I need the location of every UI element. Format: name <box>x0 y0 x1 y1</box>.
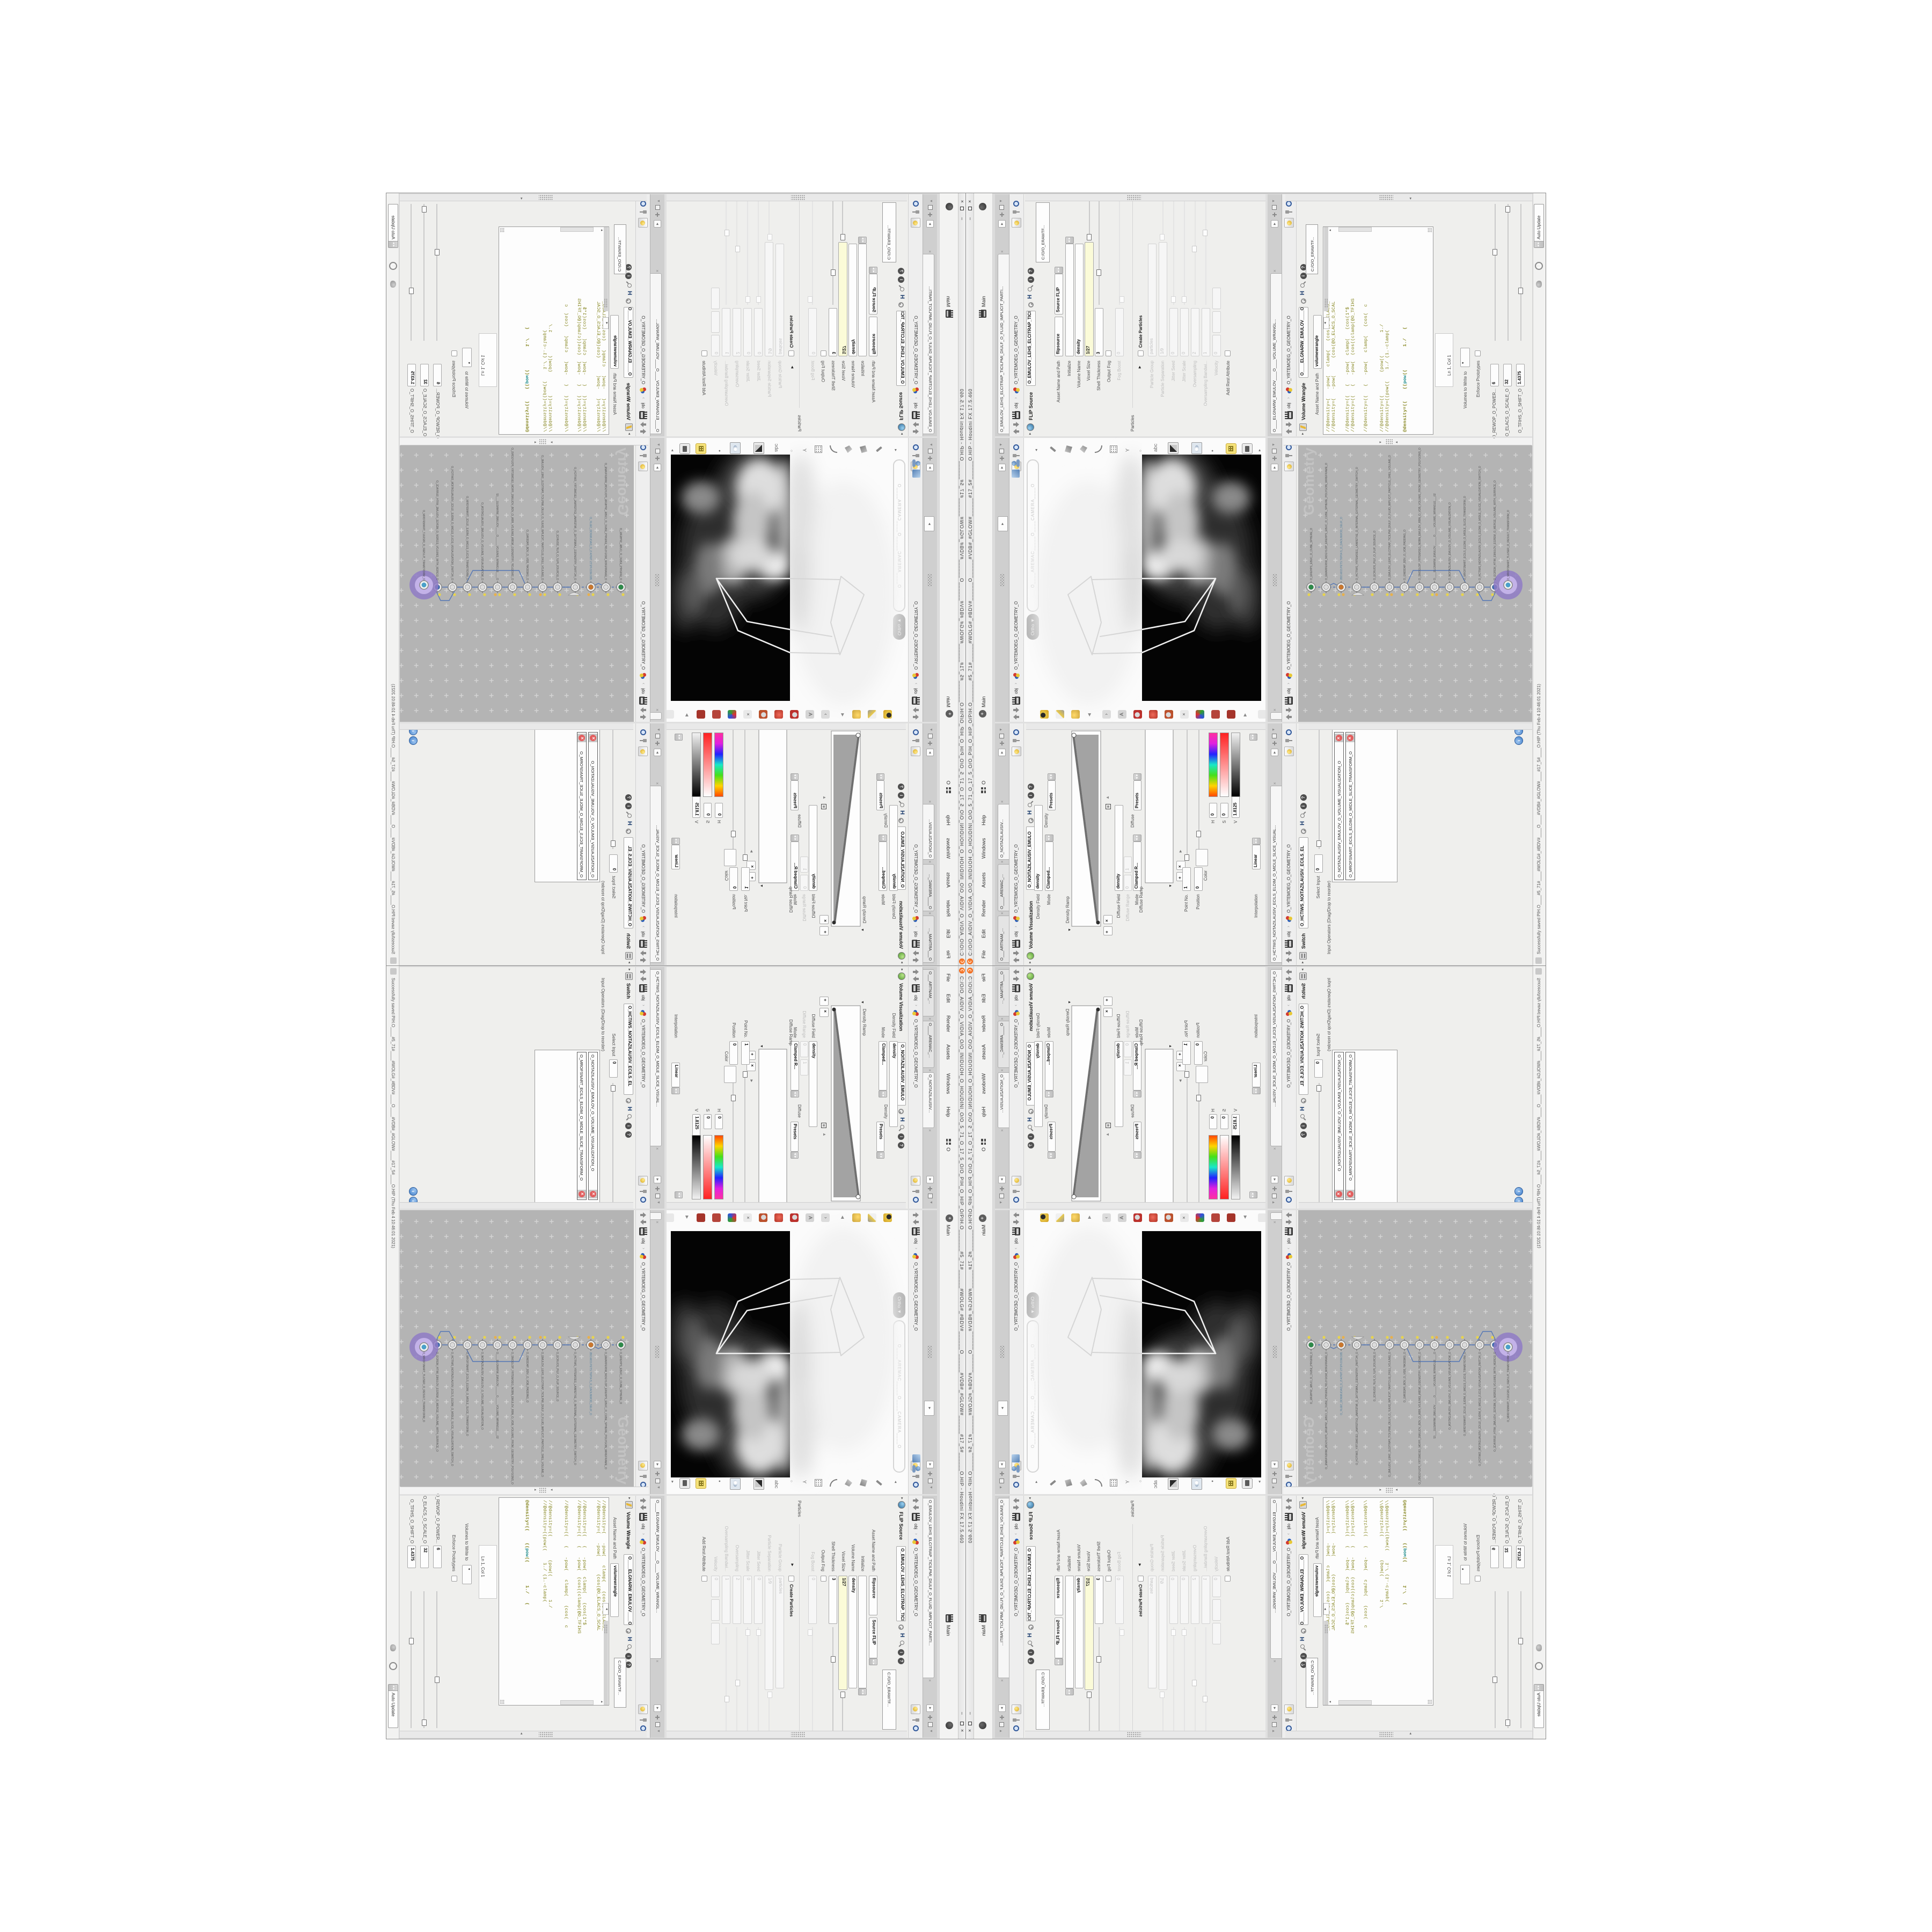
svg-text:O_GNIDDAP_BDV_O_VDB_PADDING_O: O_GNIDDAP_BDV_O_VDB_PADDING_O <box>1403 530 1407 580</box>
svg-text:JBO.M03.PETS.T6P04.5_O_DAOLNWO: JBO.M03.PETS.T6P04.5_O_DAOLNWOD_SELIF_O <box>1340 1352 1343 1415</box>
svg-text:O____ELGNARW_EMULOV______O____: O____ELGNARW_EMULOV______O_____VOLUME_WR… <box>495 1352 499 1439</box>
svg-text:O_MROFSNART_TLUSER_O_RESULT_TR: O_MROFSNART_TLUSER_O_RESULT_TRANSFORM_O <box>1507 1352 1510 1422</box>
svg-text:O____ELGNARW_EMULOV______O____: O____ELGNARW_EMULOV______O_____VOLUME_WR… <box>1433 1352 1437 1439</box>
svg-text:O_EMARFERIW_NOGYLOP_EREHPS_EBU: O_EMARFERIW_NOGYLOP_EREHPS_EBUC_O_CUBE_S… <box>1325 463 1328 580</box>
svg-text:O_EGREM_HTIW_EMULOV_EGREM_O_ME: O_EGREM_HTIW_EMULOV_EGREM_O_MERGE_VOLUME… <box>1494 1352 1497 1452</box>
svg-text:O_MROFSNART_TLUSER_O_RESULT_TR: O_MROFSNART_TLUSER_O_RESULT_TRANSFORM_O <box>422 1352 425 1422</box>
svg-text:JBO.M03.PETS.T6P04.5_O_DAOLNWO: JBO.M03.PETS.T6P04.5_O_DAOLNWOD_SELIF_O <box>589 517 592 580</box>
svg-text:O_EREHPS_EBUC_O_CUBE_SPHERE_O: O_EREHPS_EBUC_O_CUBE_SPHERE_O <box>619 1352 622 1404</box>
svg-text:O_MROFSNART_TLUSER_O_RESULT_TR: O_MROFSNART_TLUSER_O_RESULT_TRANSFORM_O <box>1507 510 1510 580</box>
svg-text:O_EREHPS_EBUC_O_CUBE_SPHERE_O: O_EREHPS_EBUC_O_CUBE_SPHERE_O <box>1310 528 1313 580</box>
svg-text:Geometry: Geometry <box>615 448 631 515</box>
svg-text:O_HCTIWS_NOITAZILAUSIV_ECILS_E: O_HCTIWS_NOITAZILAUSIV_ECILS_ELDIM_O_MID… <box>1479 466 1482 580</box>
svg-text:O____ELGNARW_EMULOV______O____: O____ELGNARW_EMULOV______O_____VOLUME_WR… <box>1433 493 1437 580</box>
svg-text:O_MROFSNART_TLUSER_O_RESULT_TR: O_MROFSNART_TLUSER_O_RESULT_TRANSFORM_O <box>422 510 425 580</box>
svg-text:O_MROFSNART_ECILS_ELDIM_O_MIDL: O_MROFSNART_ECILS_ELDIM_O_MIDLE_SLICE_TR… <box>465 1352 469 1436</box>
svg-text:O_MROFSNART_ECILS_ELDIM_O_MIDL: O_MROFSNART_ECILS_ELDIM_O_MIDLE_SLICE_TR… <box>1463 496 1467 580</box>
svg-text:O_EMULOV_LEHS_ELCITRAP_TICILPM: O_EMULOV_LEHS_ELCITRAP_TICILPMI_DIULF_O_… <box>1388 1352 1392 1477</box>
svg-text:O_ECRUOS_PILF_O_FLIP_SOURCE_O: O_ECRUOS_PILF_O_FLIP_SOURCE_O <box>555 1352 559 1401</box>
svg-text:O_GNIDDAP_BDV_O_VDB_PADDING_O: O_GNIDDAP_BDV_O_VDB_PADDING_O <box>525 1352 529 1402</box>
svg-text:O_SNOGLOP_YRTEMOEG_NOBN_EMULOV: O_SNOGLOP_YRTEMOEG_NOBN_EMULOV_RBN_O_VDB… <box>510 448 514 580</box>
svg-text:O_MROFSNART_ECILS_ELDIM_O_MIDL: O_MROFSNART_ECILS_ELDIM_O_MIDLE_SLICE_TR… <box>1463 1352 1467 1436</box>
svg-text:O____ELGNARW_EMULOV______O____: O____ELGNARW_EMULOV______O_____VOLUME_WR… <box>495 493 499 580</box>
svg-text:JBO.M03.PETS.T6P04.5_O_DAOLNWO: JBO.M03.PETS.T6P04.5_O_DAOLNWOD_SELIF_O <box>589 1352 592 1415</box>
svg-text:Geometry: Geometry <box>1301 448 1317 515</box>
svg-text:O_SNOGLOP_YRTEMOEG_NOBN_EMULOV: O_SNOGLOP_YRTEMOEG_NOBN_EMULOV_RBN_O_VDB… <box>1418 1352 1422 1484</box>
svg-text:O_ECRUOS_PILF_O_FLIP_SOURCE_O: O_ECRUOS_PILF_O_FLIP_SOURCE_O <box>1373 531 1377 580</box>
svg-text:O_EMULOV_LEHS_ELCITRAP_TICILPM: O_EMULOV_LEHS_ELCITRAP_TICILPMI_DIULF_O_… <box>540 1352 544 1477</box>
svg-text:O_HCTIWS_NOITAZILAUSIV_ECILS_E: O_HCTIWS_NOITAZILAUSIV_ECILS_ELDIM_O_MID… <box>450 1352 453 1466</box>
svg-text:O_EREHPS_EBUC_O_CUBE_SPHERE_O: O_EREHPS_EBUC_O_CUBE_SPHERE_O <box>619 528 622 580</box>
svg-text:O_EMULOV_LEHS_ELCITRAP_TICILPM: O_EMULOV_LEHS_ELCITRAP_TICILPMI_DIULF_O_… <box>1388 455 1392 580</box>
svg-text:O_EGREM_HTIW_EMULOV_EGREM_O_ME: O_EGREM_HTIW_EMULOV_EGREM_O_MERGE_VOLUME… <box>1494 480 1497 580</box>
svg-text:O_NOITAZILAUSIV_EMULOV_O_VOLUM: O_NOITAZILAUSIV_EMULOV_O_VOLUME_VISUALIZ… <box>480 1352 484 1430</box>
svg-text:O_HCTIWS_NOITAZILAUSIV_ECILS_E: O_HCTIWS_NOITAZILAUSIV_ECILS_ELDIM_O_MID… <box>450 466 453 580</box>
svg-text:O_MROFSNART_ECILS_ELDIM_O_MIDL: O_MROFSNART_ECILS_ELDIM_O_MIDLE_SLICE_TR… <box>465 496 469 580</box>
svg-text:O_NOITAZILAUSIV_EMULOV_O_VOLUM: O_NOITAZILAUSIV_EMULOV_O_VOLUME_VISUALIZ… <box>1448 1352 1452 1430</box>
svg-text:O_SNOGLOP_YRTEMOEG_NOBN_EMULOV: O_SNOGLOP_YRTEMOEG_NOBN_EMULOV_RBN_O_VDB… <box>510 1352 514 1484</box>
svg-text:O_HCTIWS_NOITAZILAUSIV_ECILS_E: O_HCTIWS_NOITAZILAUSIV_ECILS_ELDIM_O_MID… <box>1479 1352 1482 1466</box>
svg-text:O_EREHPS_EBUC_O_CUBE_SPHERE_O: O_EREHPS_EBUC_O_CUBE_SPHERE_O <box>1310 1352 1313 1404</box>
svg-text:O_NOITAZILAUSIV_EMULOV_O_VOLUM: O_NOITAZILAUSIV_EMULOV_O_VOLUME_VISUALIZ… <box>480 502 484 580</box>
svg-text:O_GNIDDAP_BDV_O_VDB_PADDING_O: O_GNIDDAP_BDV_O_VDB_PADDING_O <box>525 530 529 580</box>
svg-text:O_EGREM_HTIW_EMULOV_EGREM_O_ME: O_EGREM_HTIW_EMULOV_EGREM_O_MERGE_VOLUME… <box>435 480 438 580</box>
svg-text:O_GNIDDAP_BDV_O_VDB_PADDING_O: O_GNIDDAP_BDV_O_VDB_PADDING_O <box>1403 1352 1407 1402</box>
svg-text:O_SNOGLOP_YRTEMOEG_NOBN_EMULOV: O_SNOGLOP_YRTEMOEG_NOBN_EMULOV_RBN_O_VDB… <box>1418 448 1422 580</box>
svg-text:JBO.M03.PETS.T6P04.5_O_DAOLNWO: JBO.M03.PETS.T6P04.5_O_DAOLNWOD_SELIF_O <box>1340 517 1343 580</box>
svg-text:Geometry: Geometry <box>615 1417 631 1484</box>
svg-text:O_ECRUOS_PILF_O_FLIP_SOURCE_O: O_ECRUOS_PILF_O_FLIP_SOURCE_O <box>1373 1352 1377 1401</box>
svg-text:O_EMULOV_LEHS_ELCITRAP_TICILPM: O_EMULOV_LEHS_ELCITRAP_TICILPMI_DIULF_O_… <box>540 455 544 580</box>
svg-text:O_NOITAZILAUSIV_EMULOV_O_VOLUM: O_NOITAZILAUSIV_EMULOV_O_VOLUME_VISUALIZ… <box>1448 502 1452 580</box>
svg-text:Geometry: Geometry <box>1301 1417 1317 1484</box>
svg-text:O_EGREM_HTIW_EMULOV_EGREM_O_ME: O_EGREM_HTIW_EMULOV_EGREM_O_MERGE_VOLUME… <box>435 1352 438 1452</box>
svg-text:O_EMARFERIW_NOGYLOP_EREHPS_EBU: O_EMARFERIW_NOGYLOP_EREHPS_EBUC_O_CUBE_S… <box>604 1352 607 1469</box>
svg-text:O_HCTIWS_YRTEMOEG_LANRETXE_O_I: O_HCTIWS_YRTEMOEG_LANRETXE_O_INTERNAL_EX… <box>1356 467 1359 580</box>
svg-text:O_EMARFERIW_NOGYLOP_EREHPS_EBU: O_EMARFERIW_NOGYLOP_EREHPS_EBUC_O_CUBE_S… <box>1325 1352 1328 1469</box>
svg-text:O_ECRUOS_PILF_O_FLIP_SOURCE_O: O_ECRUOS_PILF_O_FLIP_SOURCE_O <box>555 531 559 580</box>
svg-text:O_HCTIWS_YRTEMOEG_LANRETXE_O_I: O_HCTIWS_YRTEMOEG_LANRETXE_O_INTERNAL_EX… <box>1356 1352 1359 1465</box>
svg-text:O_EMARFERIW_NOGYLOP_EREHPS_EBU: O_EMARFERIW_NOGYLOP_EREHPS_EBUC_O_CUBE_S… <box>604 463 607 580</box>
svg-text:O_HCTIWS_YRTEMOEG_LANRETXE_O_I: O_HCTIWS_YRTEMOEG_LANRETXE_O_INTERNAL_EX… <box>573 467 576 580</box>
svg-text:O_HCTIWS_YRTEMOEG_LANRETXE_O_I: O_HCTIWS_YRTEMOEG_LANRETXE_O_INTERNAL_EX… <box>573 1352 576 1465</box>
